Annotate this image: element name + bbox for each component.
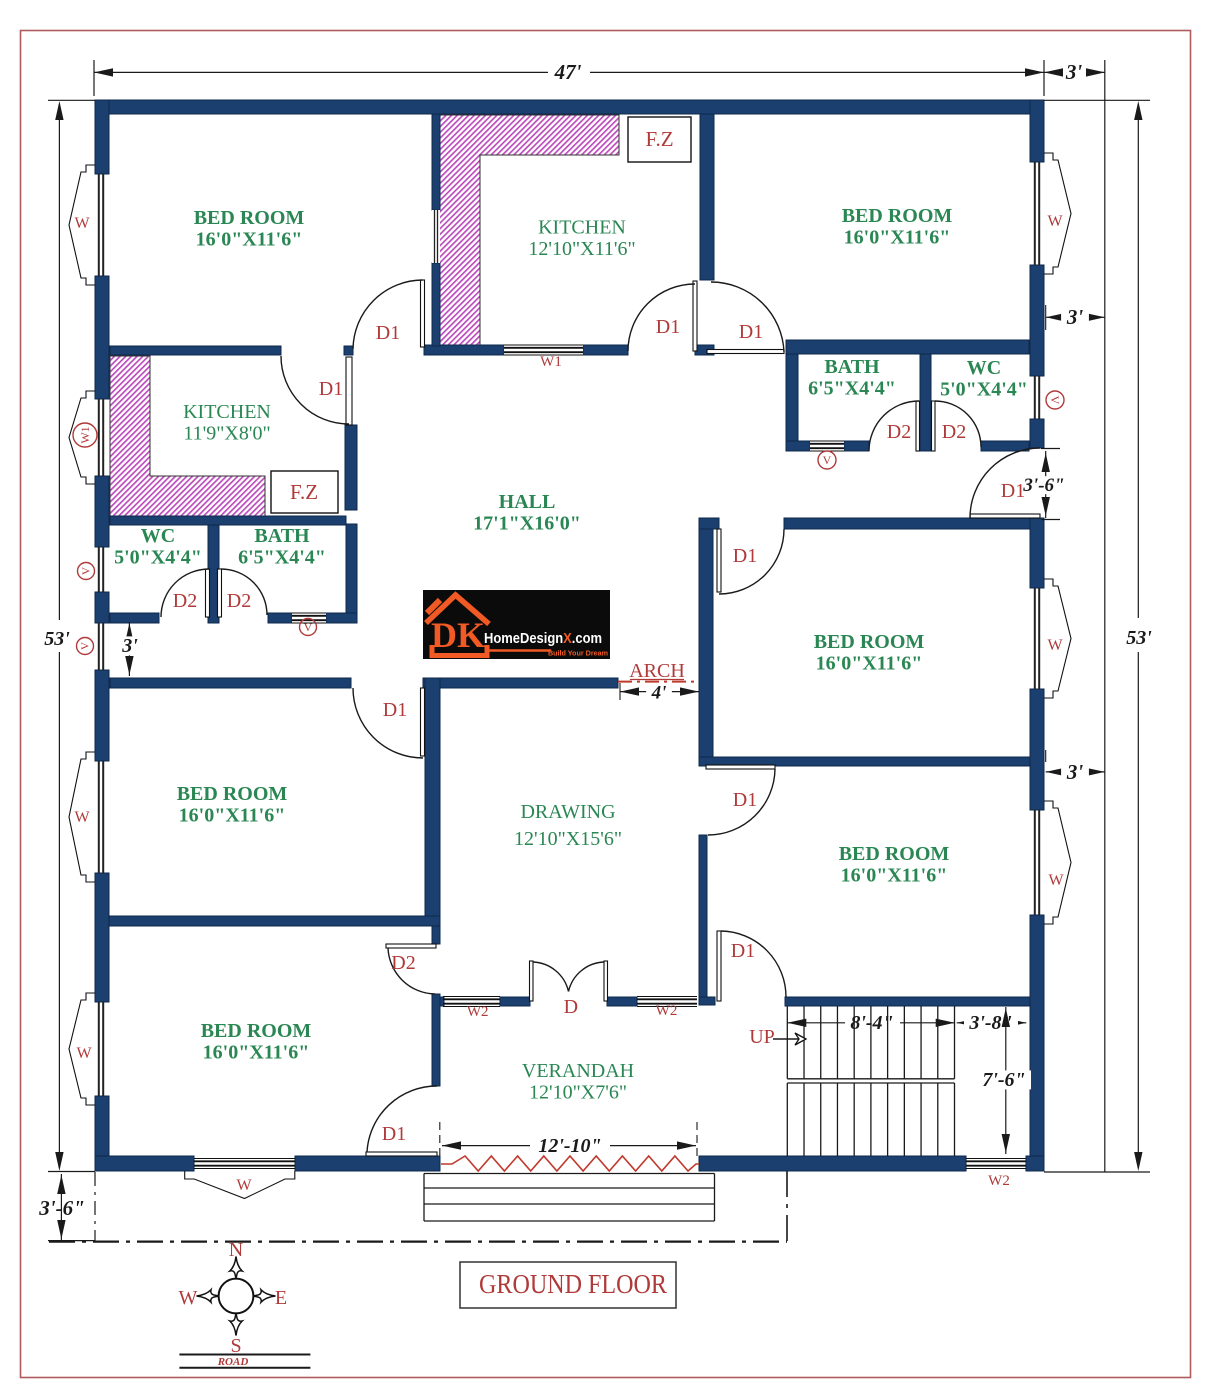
svg-text:UP: UP xyxy=(749,1026,775,1048)
svg-text:D1: D1 xyxy=(383,699,407,721)
svg-text:D2: D2 xyxy=(227,590,251,612)
svg-text:D1: D1 xyxy=(319,378,343,400)
svg-text:N: N xyxy=(229,1239,243,1261)
svg-text:16'0"X11'6": 16'0"X11'6" xyxy=(203,1042,310,1064)
svg-text:5'0"X4'4": 5'0"X4'4" xyxy=(114,547,202,569)
svg-text:53': 53' xyxy=(44,628,70,650)
svg-text:16'0"X11'6": 16'0"X11'6" xyxy=(841,865,948,887)
svg-text:17'1"X16'0": 17'1"X16'0" xyxy=(473,513,581,535)
svg-text:WC: WC xyxy=(967,357,1001,379)
svg-text:D1: D1 xyxy=(376,322,400,344)
svg-text:12'10"X7'6": 12'10"X7'6" xyxy=(529,1082,627,1104)
svg-text:F.Z: F.Z xyxy=(290,480,318,504)
svg-text:WC: WC xyxy=(141,525,175,547)
svg-text:D2: D2 xyxy=(391,952,415,974)
svg-text:4': 4' xyxy=(651,683,667,704)
svg-text:BATH: BATH xyxy=(824,356,880,378)
svg-text:D2: D2 xyxy=(887,421,911,443)
svg-text:BED ROOM: BED ROOM xyxy=(201,1020,312,1042)
svg-text:16'0"X11'6": 16'0"X11'6" xyxy=(844,227,951,249)
svg-text:HomeDesignX.com: HomeDesignX.com xyxy=(484,630,602,647)
svg-text:W: W xyxy=(236,1177,252,1194)
svg-text:W2: W2 xyxy=(467,1004,489,1020)
svg-text:BED ROOM: BED ROOM xyxy=(842,205,953,227)
svg-text:BED ROOM: BED ROOM xyxy=(194,207,305,229)
svg-text:7'-6": 7'-6" xyxy=(982,1069,1025,1091)
svg-text:6'5"X4'4": 6'5"X4'4" xyxy=(238,547,326,569)
svg-text:DK: DK xyxy=(431,615,485,655)
svg-text:BED ROOM: BED ROOM xyxy=(177,783,288,805)
svg-text:D: D xyxy=(564,996,578,1018)
svg-text:3': 3' xyxy=(1066,760,1084,784)
svg-text:5'0"X4'4": 5'0"X4'4" xyxy=(940,379,1028,401)
svg-text:D1: D1 xyxy=(656,316,680,338)
svg-text:D1: D1 xyxy=(731,940,755,962)
svg-text:W: W xyxy=(179,1287,198,1309)
svg-text:D2: D2 xyxy=(942,421,966,443)
svg-text:V: V xyxy=(304,620,313,634)
svg-text:BATH: BATH xyxy=(254,525,310,547)
svg-text:16'0"X11'6": 16'0"X11'6" xyxy=(179,805,286,827)
svg-text:3'-6": 3'-6" xyxy=(1022,475,1064,496)
svg-text:12'10"X15'6": 12'10"X15'6" xyxy=(514,828,622,850)
svg-text:W2: W2 xyxy=(656,1003,678,1019)
svg-text:GROUND FLOOR: GROUND FLOOR xyxy=(479,1269,667,1299)
svg-text:8'-4": 8'-4" xyxy=(850,1012,893,1034)
svg-text:W2: W2 xyxy=(988,1173,1010,1189)
svg-text:VERANDAH: VERANDAH xyxy=(522,1060,634,1082)
svg-text:W: W xyxy=(1048,872,1064,889)
svg-text:D1: D1 xyxy=(739,321,763,343)
svg-text:W: W xyxy=(1047,213,1063,230)
svg-text:F.Z: F.Z xyxy=(645,127,673,151)
svg-text:V: V xyxy=(80,642,92,650)
svg-text:KITCHEN: KITCHEN xyxy=(183,401,271,423)
svg-text:3'-6": 3'-6" xyxy=(38,1196,85,1220)
svg-text:3': 3' xyxy=(1066,305,1084,329)
svg-text:3': 3' xyxy=(121,635,138,657)
svg-text:W1: W1 xyxy=(78,426,92,443)
svg-text:6'5"X4'4": 6'5"X4'4" xyxy=(808,378,896,400)
svg-text:KITCHEN: KITCHEN xyxy=(538,217,626,239)
svg-text:V: V xyxy=(823,453,832,467)
svg-text:11'9"X8'0": 11'9"X8'0" xyxy=(183,423,270,445)
svg-text:BED ROOM: BED ROOM xyxy=(839,843,950,865)
svg-text:16'0"X11'6": 16'0"X11'6" xyxy=(196,229,303,251)
svg-text:D2: D2 xyxy=(173,590,197,612)
svg-text:D1: D1 xyxy=(382,1123,406,1145)
svg-text:ROAD: ROAD xyxy=(217,1356,249,1368)
svg-text:BED ROOM: BED ROOM xyxy=(814,631,925,653)
svg-text:ARCH: ARCH xyxy=(629,660,685,682)
svg-text:W: W xyxy=(76,1045,92,1062)
svg-text:W: W xyxy=(1047,637,1063,654)
svg-text:W: W xyxy=(74,809,90,826)
svg-text:HALL: HALL xyxy=(499,491,556,513)
svg-text:E: E xyxy=(275,1287,287,1309)
svg-text:V: V xyxy=(81,567,93,575)
svg-text:3': 3' xyxy=(1065,60,1083,84)
svg-text:12'-10": 12'-10" xyxy=(538,1135,601,1157)
svg-text:12'10"X11'6": 12'10"X11'6" xyxy=(528,238,635,260)
svg-text:W1: W1 xyxy=(540,354,562,370)
svg-text:Build Your Dream: Build Your Dream xyxy=(548,649,608,658)
svg-text:W: W xyxy=(74,215,90,232)
svg-text:V: V xyxy=(1048,396,1062,405)
svg-text:DRAWING: DRAWING xyxy=(520,801,615,823)
svg-text:D1: D1 xyxy=(1001,480,1025,502)
svg-text:47': 47' xyxy=(554,60,582,84)
svg-text:D1: D1 xyxy=(733,545,757,567)
svg-text:D1: D1 xyxy=(733,789,757,811)
svg-text:53': 53' xyxy=(1126,627,1152,649)
svg-text:16'0"X11'6": 16'0"X11'6" xyxy=(816,653,923,675)
